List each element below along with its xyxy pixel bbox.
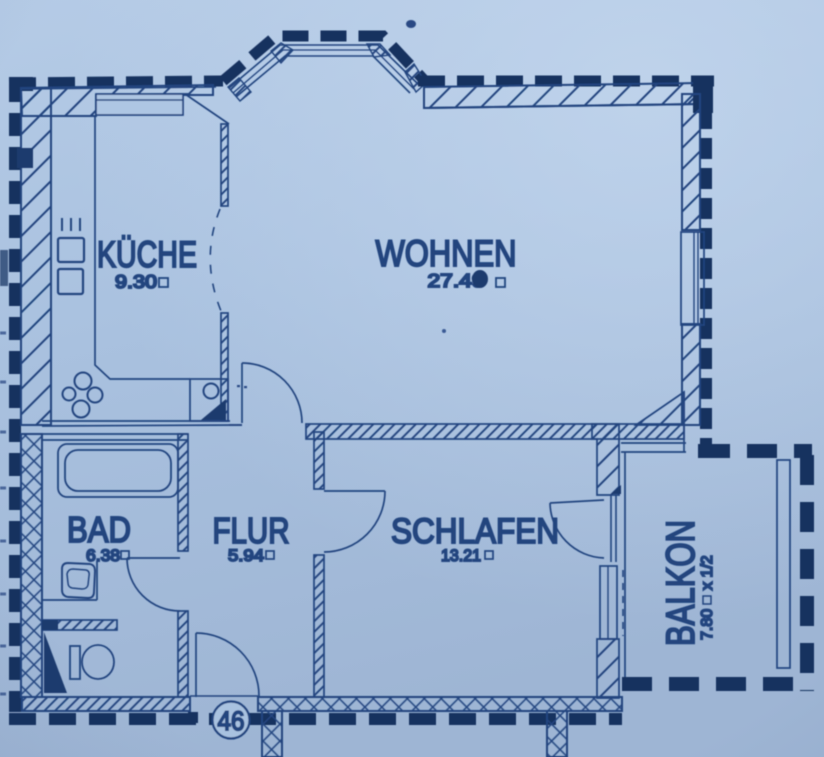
- svg-text:6.38: 6.38: [86, 546, 120, 565]
- svg-text:FLUR: FLUR: [213, 510, 290, 551]
- svg-text:BAD: BAD: [67, 509, 131, 550]
- svg-text:7.80: 7.80: [699, 609, 716, 640]
- svg-text:x 1/2: x 1/2: [699, 555, 716, 590]
- svg-text:KÜCHE: KÜCHE: [97, 234, 197, 275]
- svg-text:46: 46: [218, 706, 245, 736]
- svg-text:13.21: 13.21: [441, 546, 481, 565]
- svg-text:5.94: 5.94: [228, 546, 264, 565]
- svg-text:WOHNEN: WOHNEN: [376, 233, 517, 274]
- svg-text:BALKON: BALKON: [659, 520, 703, 646]
- svg-text:9.30: 9.30: [115, 272, 157, 292]
